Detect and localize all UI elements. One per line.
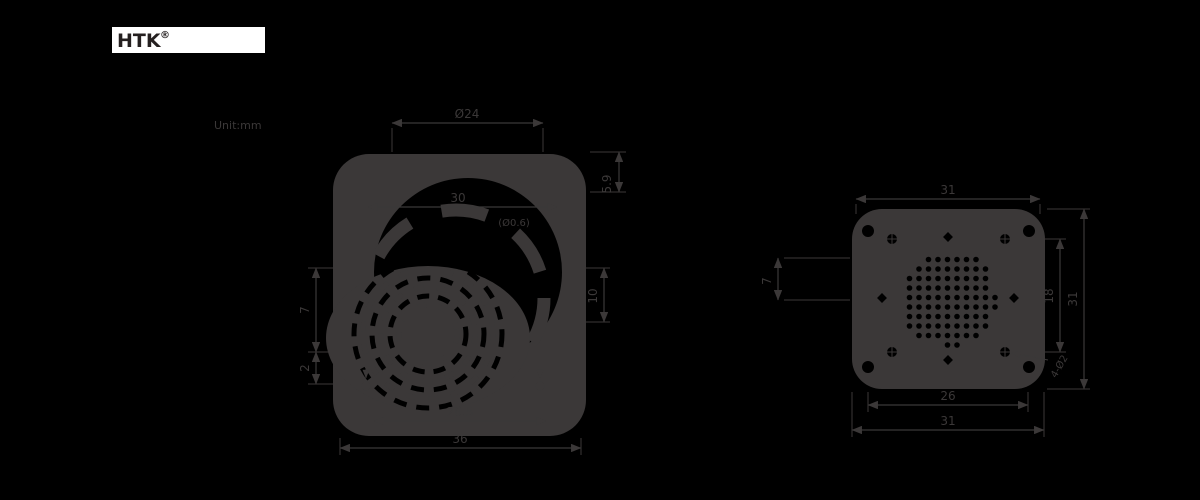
grille-hole xyxy=(935,295,941,301)
grille-hole xyxy=(983,295,989,301)
grille-hole xyxy=(964,295,970,301)
grille-hole xyxy=(954,323,960,329)
grille-hole xyxy=(973,333,979,339)
dim-rear-right-height-value: 31 xyxy=(1066,291,1080,306)
grille-hole xyxy=(973,276,979,282)
grille-hole xyxy=(954,257,960,263)
grille-hole xyxy=(973,257,979,263)
grille-hole xyxy=(945,295,951,301)
grille-hole xyxy=(992,295,998,301)
grille-hole xyxy=(926,314,932,320)
grille-hole xyxy=(964,314,970,320)
dim-rear-top-value: 31 xyxy=(940,183,955,197)
grille-hole xyxy=(973,314,979,320)
grille-hole xyxy=(954,314,960,320)
grille-hole xyxy=(964,304,970,310)
grille-hole xyxy=(926,304,932,310)
grille-hole xyxy=(954,285,960,291)
grille-hole xyxy=(954,266,960,272)
grille-hole xyxy=(916,276,922,282)
grille-hole xyxy=(983,323,989,329)
grille-hole xyxy=(907,295,913,301)
grille-hole xyxy=(992,304,998,310)
grille-hole xyxy=(916,304,922,310)
dim-front-depth-value: 5.9 xyxy=(600,174,614,193)
grille-hole xyxy=(945,257,951,263)
grille-hole xyxy=(954,295,960,301)
grille-hole xyxy=(983,285,989,291)
dim-front-left-upper-value: 7 xyxy=(298,306,312,314)
grille-hole xyxy=(916,314,922,320)
grille-hole xyxy=(945,342,951,348)
grille-hole xyxy=(983,266,989,272)
front-view: Ø24 30 (Ø0.6) 5.9 10 xyxy=(298,107,626,455)
grille-hole xyxy=(935,266,941,272)
dim-front-bottom-inner-value: 26.5 xyxy=(447,405,474,419)
grille-hole xyxy=(935,314,941,320)
grille-hole xyxy=(926,333,932,339)
grille-hole xyxy=(964,266,970,272)
grille-hole xyxy=(964,285,970,291)
unit-note: Unit:mm xyxy=(214,119,262,132)
grille-hole xyxy=(983,304,989,310)
dim-front-right-spacing: 10 xyxy=(586,268,610,322)
grille-hole xyxy=(907,285,913,291)
grille-hole xyxy=(916,333,922,339)
dim-front-inner-value: 30 xyxy=(450,191,465,205)
grille-hole xyxy=(935,323,941,329)
grille-hole xyxy=(935,304,941,310)
grille-hole xyxy=(954,333,960,339)
grille-hole xyxy=(945,314,951,320)
grille-hole xyxy=(926,295,932,301)
grille-hole xyxy=(983,314,989,320)
grille-hole xyxy=(954,342,960,348)
corner-hole-ne xyxy=(1023,225,1035,237)
grille-hole xyxy=(964,323,970,329)
dim-front-right-spacing-value: 10 xyxy=(586,288,600,303)
grille-hole xyxy=(907,276,913,282)
grille-hole xyxy=(907,314,913,320)
grille-hole xyxy=(926,266,932,272)
grille-hole xyxy=(954,304,960,310)
rear-view: 31 26 31 18 31 xyxy=(760,183,1090,437)
hole-note-value: 4-Ø2 xyxy=(1048,353,1071,380)
logo: HTK ® xyxy=(112,27,265,53)
grille-hole xyxy=(916,323,922,329)
dim-rear-bottom-inner-value: 26 xyxy=(940,389,955,403)
grille-hole xyxy=(945,304,951,310)
grille-hole xyxy=(916,285,922,291)
terminal-left xyxy=(362,382,371,391)
dim-rear-bottom-inner: 26 xyxy=(868,389,1028,412)
grille-hole xyxy=(935,276,941,282)
terminal-right xyxy=(536,382,545,391)
dim-front-top: Ø24 xyxy=(392,107,543,152)
grille-hole xyxy=(907,323,913,329)
grille-hole xyxy=(964,257,970,263)
grille-hole xyxy=(945,333,951,339)
corner-hole-nw xyxy=(862,225,874,237)
grille-hole xyxy=(926,285,932,291)
dim-rear-bottom-outer-value: 31 xyxy=(940,414,955,428)
grille-hole xyxy=(926,276,932,282)
grille-hole xyxy=(916,266,922,272)
grille-hole xyxy=(973,285,979,291)
drawing-canvas: HTK ® Unit:mm Ø24 xyxy=(0,0,1200,500)
corner-hole-sw xyxy=(862,361,874,373)
grille-hole xyxy=(964,276,970,282)
dim-front-depth: 5.9 xyxy=(590,152,626,194)
dim-front-left-lower-value: 2 xyxy=(298,364,312,372)
registered-mark-icon: ® xyxy=(160,30,170,41)
grille-hole xyxy=(935,333,941,339)
grille-hole xyxy=(926,323,932,329)
grille-hole xyxy=(945,323,951,329)
grille-hole xyxy=(945,266,951,272)
grille-hole xyxy=(916,295,922,301)
grille-hole xyxy=(973,304,979,310)
technical-drawing: HTK ® Unit:mm Ø24 xyxy=(0,0,1200,500)
grille-hole xyxy=(935,285,941,291)
logo-text: HTK xyxy=(117,30,162,52)
grille-hole xyxy=(954,276,960,282)
grille-hole xyxy=(973,266,979,272)
grille-hole xyxy=(973,295,979,301)
grille-hole xyxy=(945,276,951,282)
grille-hole xyxy=(926,257,932,263)
dim-rear-hole-spacing-value: 18 xyxy=(1042,288,1056,303)
grille-hole xyxy=(983,276,989,282)
dim-front-top-value: Ø24 xyxy=(455,107,480,121)
dim-front-inner-note: (Ø0.6) xyxy=(498,217,530,229)
grille-hole xyxy=(935,257,941,263)
dim-front-bottom-outer-value: 36 xyxy=(452,432,467,446)
grille-hole xyxy=(973,323,979,329)
dim-rear-left-value: 7 xyxy=(760,277,774,285)
grille-hole xyxy=(907,304,913,310)
grille-hole xyxy=(964,333,970,339)
corner-hole-se xyxy=(1023,361,1035,373)
grille-hole xyxy=(945,285,951,291)
dim-rear-left: 7 xyxy=(760,258,850,300)
